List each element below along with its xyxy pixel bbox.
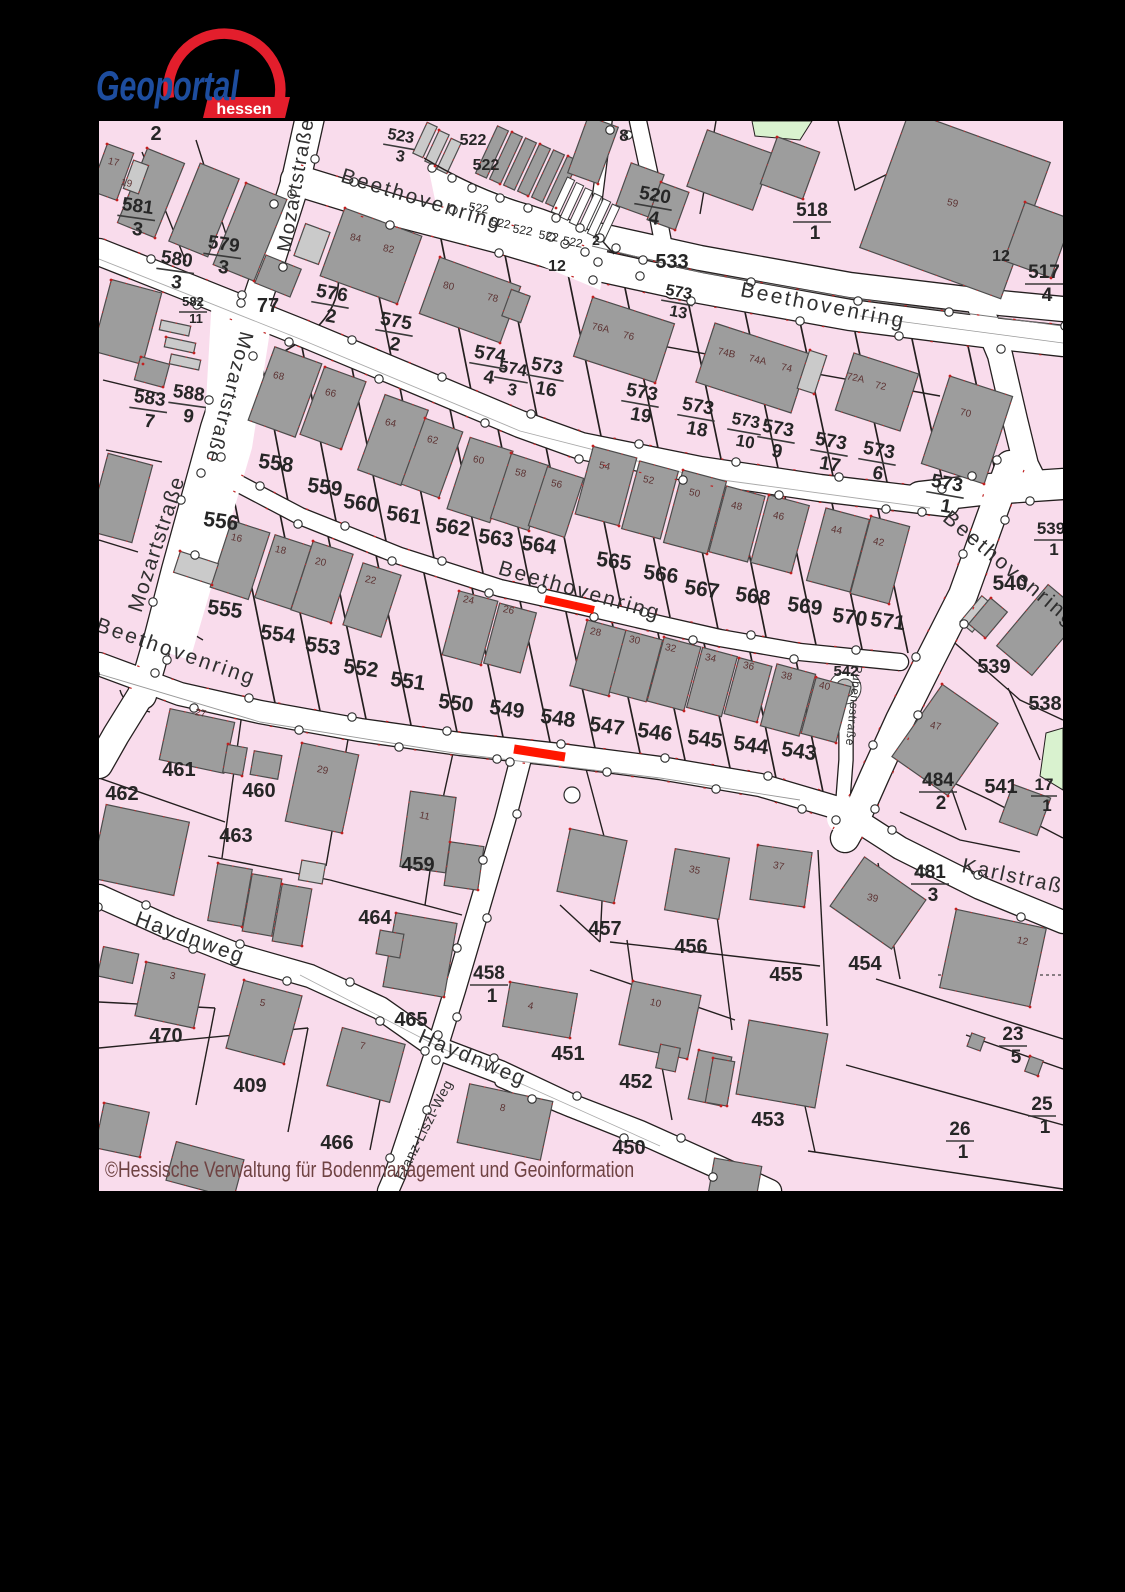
svg-text:552: 552 [342,655,380,683]
svg-text:457: 457 [588,918,621,940]
svg-text:23: 23 [1002,1024,1023,1045]
svg-text:570: 570 [831,604,869,632]
svg-text:1: 1 [487,986,498,1007]
svg-text:4: 4 [1042,285,1053,306]
svg-text:564: 564 [520,532,558,560]
svg-text:563: 563 [477,525,515,553]
svg-text:1: 1 [1049,540,1058,559]
svg-text:25: 25 [1031,1094,1053,1115]
svg-text:518: 518 [796,200,828,221]
svg-text:540: 540 [992,572,1027,595]
svg-text:559: 559 [306,474,344,502]
svg-text:456: 456 [674,936,707,958]
svg-text:17: 17 [818,453,842,477]
svg-text:562: 562 [434,514,472,542]
svg-text:2: 2 [150,123,161,145]
svg-text:459: 459 [401,854,434,876]
svg-text:580: 580 [160,247,194,272]
svg-text:484: 484 [922,770,954,791]
svg-text:533: 533 [655,251,688,273]
svg-text:583: 583 [133,386,167,411]
svg-text:579: 579 [207,232,241,257]
svg-text:560: 560 [342,490,380,518]
svg-text:Geoportal: Geoportal [96,62,239,109]
svg-text:522: 522 [473,157,500,174]
svg-text:1: 1 [1040,1117,1051,1138]
svg-text:8: 8 [619,126,628,145]
svg-text:517: 517 [1028,262,1060,283]
svg-text:551: 551 [389,668,427,696]
svg-text:451: 451 [551,1043,584,1065]
svg-text:481: 481 [914,862,946,883]
svg-text:539: 539 [1037,519,1065,538]
svg-text:461: 461 [162,759,195,781]
svg-text:©Hessische Verwaltung für Bode: ©Hessische Verwaltung für Bodenmanagemen… [105,1158,634,1182]
svg-text:13: 13 [668,303,689,323]
svg-text:2: 2 [936,793,947,814]
svg-text:465: 465 [394,1009,427,1031]
svg-text:18: 18 [685,418,709,442]
svg-text:522: 522 [460,132,487,149]
svg-text:11: 11 [189,311,203,326]
svg-text:450: 450 [612,1137,645,1159]
svg-text:77: 77 [257,295,279,317]
svg-text:555: 555 [206,596,244,624]
svg-text:458: 458 [473,963,505,984]
svg-text:17: 17 [1035,775,1054,794]
svg-text:581: 581 [121,194,156,219]
svg-text:1: 1 [958,1142,969,1163]
svg-text:453: 453 [751,1109,784,1131]
svg-text:554: 554 [259,621,297,649]
svg-text:464: 464 [358,907,392,929]
svg-text:558: 558 [257,450,295,478]
svg-text:571: 571 [869,608,907,636]
svg-text:569: 569 [786,593,824,621]
svg-text:463: 463 [219,825,252,847]
svg-text:460: 460 [242,780,275,802]
svg-text:409: 409 [233,1075,266,1097]
svg-text:470: 470 [149,1025,182,1047]
svg-text:582: 582 [182,294,204,309]
svg-text:12: 12 [992,248,1010,265]
svg-text:549: 549 [488,696,526,724]
svg-text:543: 543 [780,738,818,766]
svg-text:568: 568 [734,583,772,611]
svg-text:16: 16 [534,378,558,402]
svg-text:19: 19 [629,404,653,428]
svg-text:548: 548 [539,705,577,733]
svg-text:454: 454 [848,953,882,975]
svg-text:565: 565 [595,548,633,576]
svg-text:541: 541 [984,776,1017,798]
svg-text:561: 561 [385,502,423,530]
svg-text:26: 26 [949,1119,970,1140]
svg-text:466: 466 [320,1132,353,1154]
svg-text:553: 553 [304,633,342,661]
svg-text:545: 545 [686,726,724,754]
svg-text:10: 10 [734,431,756,453]
svg-text:455: 455 [769,964,802,986]
svg-text:462: 462 [105,783,138,805]
svg-text:12: 12 [548,258,566,275]
svg-text:452: 452 [619,1071,652,1093]
svg-text:3: 3 [928,885,939,906]
svg-text:2: 2 [592,232,600,248]
svg-text:539: 539 [977,656,1010,678]
svg-text:547: 547 [588,713,626,741]
svg-text:1: 1 [1042,796,1051,815]
svg-text:566: 566 [642,561,680,589]
svg-text:588: 588 [172,381,206,406]
svg-text:542: 542 [833,663,858,680]
svg-text:538: 538 [1028,693,1061,715]
svg-text:1: 1 [810,223,821,244]
svg-text:544: 544 [732,732,770,760]
svg-text:546: 546 [636,719,674,747]
svg-text:550: 550 [437,690,475,718]
svg-text:5: 5 [1011,1047,1022,1068]
svg-text:556: 556 [202,508,240,536]
svg-text:567: 567 [683,576,721,604]
